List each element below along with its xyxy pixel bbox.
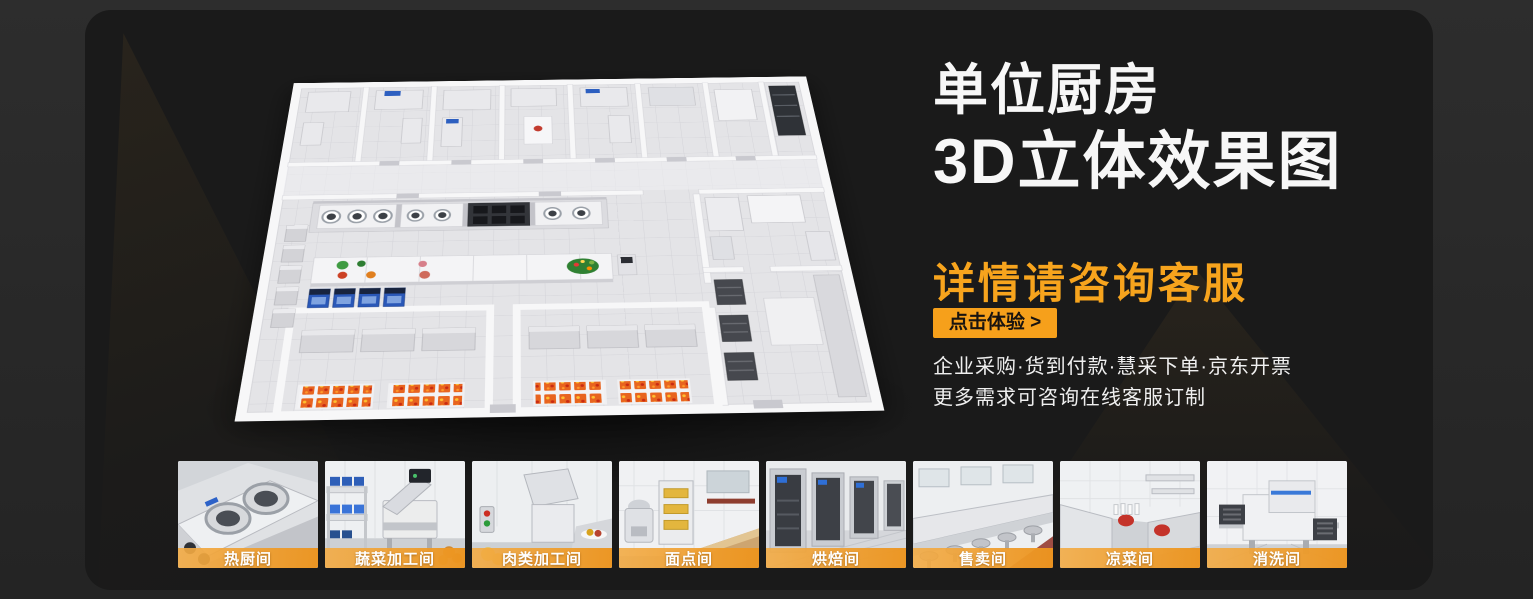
thumbnail-meat-processing[interactable]: 肉类加工间 bbox=[472, 461, 612, 568]
thumbnail-row: 热厨间 蔬菜加工间 bbox=[178, 461, 1347, 568]
headline-line2: 3D立体效果图 bbox=[933, 131, 1343, 194]
thumbnail-label: 热厨间 bbox=[178, 548, 318, 568]
thumbnail-label: 凉菜间 bbox=[1060, 548, 1200, 568]
thumbnail-selling-room[interactable]: 售卖间 bbox=[913, 461, 1053, 568]
description-line1: 企业采购·货到付款·慧采下单·京东开票 bbox=[933, 352, 1292, 383]
thumbnail-label: 烘焙间 bbox=[766, 548, 906, 568]
thumbnail-washing-room[interactable]: 消洗间 bbox=[1207, 461, 1347, 568]
subtitle: 详情请咨询客服 bbox=[933, 250, 1248, 311]
thumbnail-label: 肉类加工间 bbox=[472, 548, 612, 568]
floorplan-3d bbox=[235, 77, 883, 421]
thumbnail-label: 蔬菜加工间 bbox=[325, 548, 465, 568]
floorplan-drawing bbox=[235, 77, 883, 421]
description: 企业采购·货到付款·慧采下单·京东开票 更多需求可咨询在线客服订制 bbox=[933, 352, 1292, 414]
thumbnail-cold-dish-room[interactable]: 凉菜间 bbox=[1060, 461, 1200, 568]
thumbnail-label: 面点间 bbox=[619, 548, 759, 568]
kitchen-3d-render bbox=[85, 10, 1035, 490]
cta-button[interactable]: 点击体验 > bbox=[933, 308, 1057, 338]
description-line2: 更多需求可咨询在线客服订制 bbox=[933, 383, 1292, 414]
thumbnail-hot-kitchen[interactable]: 热厨间 bbox=[178, 461, 318, 568]
thumbnail-pastry-room[interactable]: 面点间 bbox=[619, 461, 759, 568]
thumbnail-vegetable-processing[interactable]: 蔬菜加工间 bbox=[325, 461, 465, 568]
headline-line1: 单位厨房 bbox=[933, 63, 1161, 118]
thumbnail-label: 消洗间 bbox=[1207, 548, 1347, 568]
thumbnail-baking-room[interactable]: 烘焙间 bbox=[766, 461, 906, 568]
thumbnail-label: 售卖间 bbox=[913, 548, 1053, 568]
banner-panel: 单位厨房 3D立体效果图 详情请咨询客服 点击体验 > 企业采购·货到付款·慧采… bbox=[85, 10, 1433, 590]
